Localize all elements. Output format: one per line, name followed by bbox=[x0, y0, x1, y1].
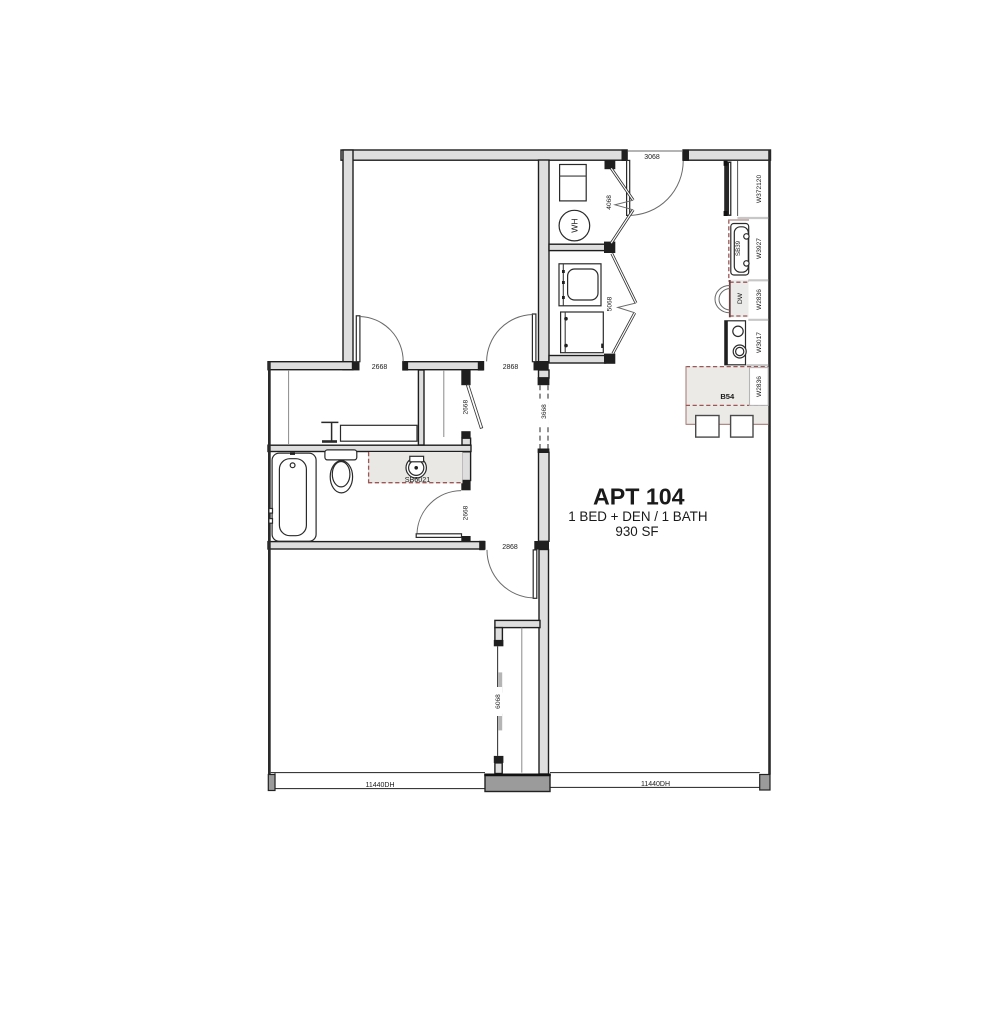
svg-text:2668: 2668 bbox=[372, 364, 388, 371]
svg-text:4068: 4068 bbox=[606, 195, 613, 210]
svg-text:3668: 3668 bbox=[541, 404, 548, 419]
svg-text:1 BED + DEN / 1 BATH: 1 BED + DEN / 1 BATH bbox=[568, 509, 707, 524]
svg-text:W3927: W3927 bbox=[756, 238, 763, 259]
svg-text:DW: DW bbox=[737, 292, 744, 304]
svg-text:W2836: W2836 bbox=[756, 376, 763, 397]
svg-text:11440DH: 11440DH bbox=[365, 782, 394, 789]
svg-text:W372120: W372120 bbox=[756, 175, 763, 204]
svg-text:11440DH: 11440DH bbox=[641, 781, 670, 788]
svg-text:6068: 6068 bbox=[495, 694, 502, 709]
svg-text:W2836: W2836 bbox=[756, 289, 763, 310]
svg-text:SB39: SB39 bbox=[735, 240, 742, 256]
svg-text:B54: B54 bbox=[720, 392, 735, 401]
svg-text:5068: 5068 bbox=[606, 296, 613, 311]
svg-text:2868: 2868 bbox=[502, 544, 518, 551]
svg-text:930 SF: 930 SF bbox=[615, 524, 658, 539]
svg-text:3068: 3068 bbox=[644, 154, 660, 161]
svg-text:WH: WH bbox=[570, 218, 580, 232]
svg-text:2668: 2668 bbox=[462, 505, 469, 520]
svg-text:W3017: W3017 bbox=[756, 332, 763, 353]
svg-text:SB6021: SB6021 bbox=[405, 475, 431, 484]
svg-text:APT 104: APT 104 bbox=[593, 484, 685, 510]
svg-text:2668: 2668 bbox=[462, 400, 469, 415]
svg-text:2868: 2868 bbox=[503, 364, 519, 371]
